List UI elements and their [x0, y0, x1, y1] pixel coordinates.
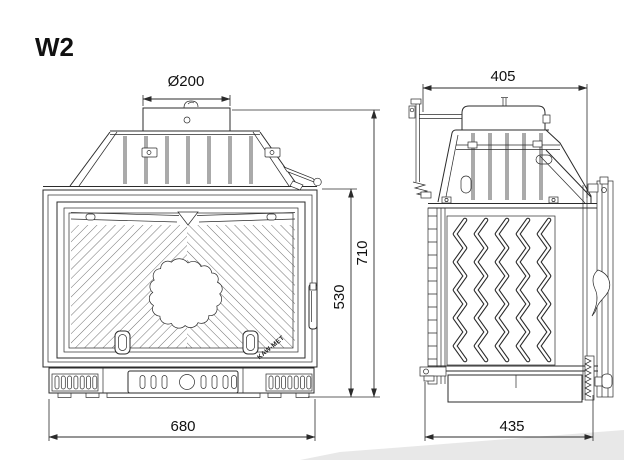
side-ribs-panel [447, 216, 555, 365]
latch-right [243, 331, 258, 354]
svg-text:710: 710 [354, 240, 371, 265]
svg-text:530: 530 [331, 284, 348, 309]
base-plinth [49, 368, 314, 398]
air-control-panel [128, 371, 238, 393]
page-shadow [300, 430, 624, 460]
latch-left [115, 331, 130, 354]
svg-text:Ø200: Ø200 [168, 73, 205, 90]
front-foot [420, 367, 446, 381]
svg-text:435: 435 [499, 418, 524, 435]
dim-width-overall: 680 [49, 399, 315, 441]
svg-text:680: 680 [170, 418, 195, 435]
dim-depth-top: 405 [423, 68, 587, 198]
damper-rod [409, 99, 462, 198]
flue-collar-side [458, 98, 550, 131]
dim-flue-diameter: Ø200 [143, 73, 230, 106]
heat-fins-front [43, 131, 317, 190]
dim-height-door: 530 [322, 189, 357, 397]
flue-collar [143, 101, 230, 131]
fireplace-insert-drawing: W2 [0, 0, 624, 460]
leveling-rack [585, 356, 594, 400]
ash-drawer [448, 375, 582, 402]
door-handle-front [309, 283, 317, 329]
fin-bolt-left [142, 148, 157, 157]
fin-bolt-right [265, 148, 280, 157]
side-view [409, 98, 613, 403]
air-deflector [71, 212, 295, 225]
dim-depth-base: 435 [425, 382, 593, 441]
front-frame-profile [428, 208, 445, 384]
svg-text:405: 405 [490, 68, 515, 85]
vent-grille-left [52, 374, 98, 391]
model-label: W2 [35, 32, 74, 62]
heat-fins-side [428, 130, 598, 208]
technical-drawing-page: W2 [0, 0, 624, 460]
vent-grille-right [266, 374, 312, 391]
front-view: KAW-MET [43, 101, 321, 398]
control-knob [180, 375, 195, 390]
